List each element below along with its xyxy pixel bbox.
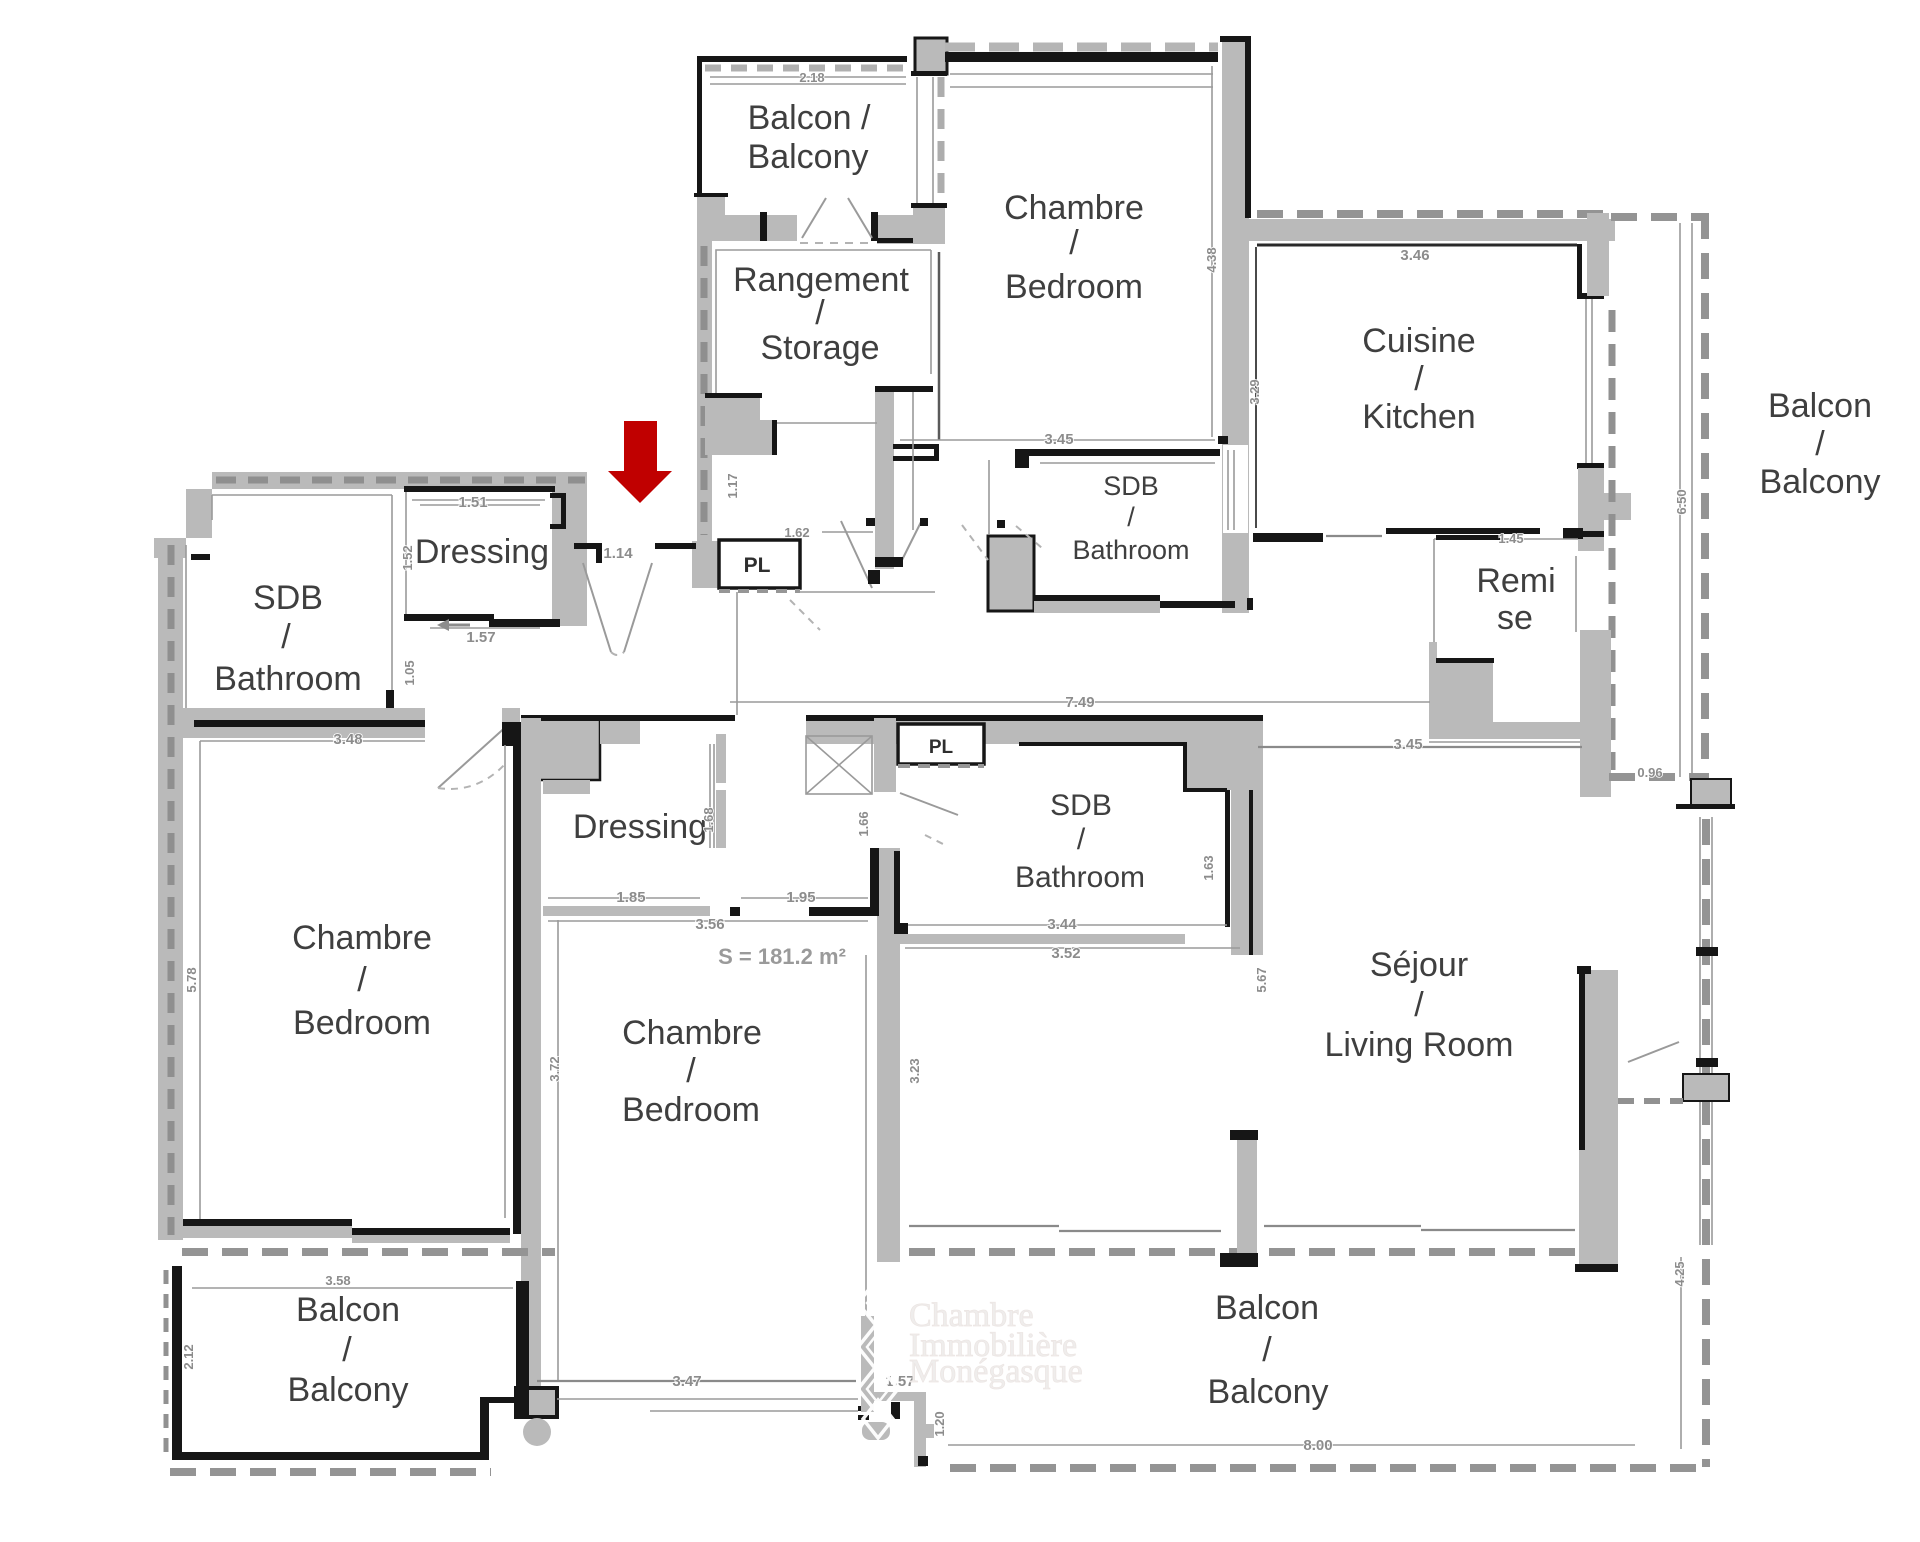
- svg-text:Balcony: Balcony: [1208, 1373, 1329, 1411]
- svg-text:/: /: [1127, 502, 1135, 532]
- svg-text:Bedroom: Bedroom: [293, 1004, 431, 1042]
- svg-text:SDB: SDB: [1050, 789, 1112, 822]
- svg-text:/: /: [357, 961, 367, 999]
- svg-text:3.45: 3.45: [1393, 736, 1422, 753]
- svg-text:Bathroom: Bathroom: [214, 660, 361, 698]
- svg-text:3.47: 3.47: [672, 1373, 701, 1390]
- svg-text:1.63: 1.63: [1201, 855, 1216, 880]
- svg-text:/: /: [1815, 425, 1825, 463]
- svg-text:SDB: SDB: [253, 579, 323, 617]
- svg-text:Dressing: Dressing: [573, 808, 707, 846]
- svg-text:3.29: 3.29: [1247, 379, 1262, 404]
- svg-text:3.45: 3.45: [1044, 431, 1073, 448]
- svg-text:Cuisine: Cuisine: [1362, 322, 1475, 360]
- svg-text:1.95: 1.95: [786, 889, 815, 906]
- svg-text:/: /: [1414, 360, 1424, 398]
- svg-text:/: /: [1069, 224, 1079, 262]
- svg-text:0.96: 0.96: [1637, 765, 1662, 780]
- svg-text:3.72: 3.72: [547, 1056, 562, 1081]
- svg-text:/: /: [686, 1052, 696, 1090]
- svg-text:S = 181.2 m²: S = 181.2 m²: [718, 944, 846, 969]
- svg-text:SDB: SDB: [1103, 471, 1159, 501]
- svg-text:/: /: [1414, 986, 1424, 1024]
- svg-text:Chambre: Chambre: [1004, 189, 1144, 227]
- svg-text:/: /: [281, 618, 291, 656]
- svg-text:Balcony: Balcony: [1760, 463, 1881, 501]
- svg-text:3.48: 3.48: [333, 731, 362, 748]
- svg-text:1.14: 1.14: [603, 545, 633, 562]
- svg-text:Chambre: Chambre: [292, 919, 432, 957]
- svg-text:3.44: 3.44: [1047, 916, 1077, 933]
- svg-text:Balcony: Balcony: [288, 1371, 409, 1409]
- svg-text:PL: PL: [744, 554, 771, 577]
- svg-text:5.67: 5.67: [1254, 967, 1269, 992]
- svg-text:1.62: 1.62: [784, 525, 809, 540]
- svg-text:Kitchen: Kitchen: [1362, 398, 1475, 436]
- svg-text:Séjour: Séjour: [1370, 946, 1468, 984]
- svg-text:se: se: [1497, 599, 1533, 637]
- svg-text:Storage: Storage: [760, 329, 879, 367]
- svg-text:3.58: 3.58: [325, 1273, 350, 1288]
- svg-text:2.12: 2.12: [181, 1344, 196, 1369]
- svg-text:3.23: 3.23: [907, 1058, 922, 1083]
- svg-text:Remi: Remi: [1476, 562, 1555, 600]
- svg-text:Balcon: Balcon: [1768, 387, 1872, 425]
- svg-text:1.20: 1.20: [932, 1411, 947, 1436]
- svg-text:1.52: 1.52: [400, 545, 415, 570]
- svg-text:Dressing: Dressing: [415, 533, 549, 571]
- svg-text:2.18: 2.18: [799, 70, 824, 85]
- svg-text:3.46: 3.46: [1400, 247, 1429, 264]
- svg-text:Balcon: Balcon: [296, 1291, 400, 1329]
- svg-text:1.85: 1.85: [616, 889, 645, 906]
- svg-text:Living Room: Living Room: [1325, 1026, 1514, 1064]
- svg-text:7.49: 7.49: [1065, 694, 1094, 711]
- svg-text:Balcon /: Balcon /: [748, 99, 871, 137]
- svg-text:1.51: 1.51: [458, 494, 487, 511]
- svg-text:PL: PL: [929, 737, 954, 758]
- svg-text:Balcony: Balcony: [748, 138, 869, 176]
- svg-text:/: /: [1262, 1331, 1272, 1369]
- svg-text:1.57: 1.57: [466, 629, 495, 646]
- svg-text:Balcon: Balcon: [1215, 1289, 1319, 1327]
- svg-text:Bedroom: Bedroom: [1005, 268, 1143, 306]
- svg-text:5.78: 5.78: [184, 967, 199, 992]
- svg-text:Bedroom: Bedroom: [622, 1091, 760, 1129]
- svg-text:Chambre: Chambre: [622, 1014, 762, 1052]
- svg-text:/: /: [342, 1331, 352, 1369]
- svg-text:6.50: 6.50: [1674, 489, 1689, 514]
- svg-text:1.66: 1.66: [856, 811, 871, 836]
- svg-text:/: /: [1077, 823, 1086, 856]
- svg-text:1.45: 1.45: [1498, 531, 1523, 546]
- svg-text:/: /: [815, 294, 825, 332]
- svg-text:4.38: 4.38: [1204, 247, 1219, 272]
- svg-text:3.56: 3.56: [695, 916, 724, 933]
- svg-text:3.52: 3.52: [1051, 945, 1080, 962]
- svg-text:Bathroom: Bathroom: [1015, 861, 1145, 894]
- svg-text:Monégasque: Monégasque: [909, 1353, 1083, 1390]
- svg-text:Bathroom: Bathroom: [1072, 535, 1189, 565]
- svg-text:8.00: 8.00: [1303, 1437, 1332, 1454]
- svg-text:1.17: 1.17: [725, 473, 740, 498]
- svg-text:1.68: 1.68: [701, 807, 716, 832]
- svg-text:1.05: 1.05: [402, 660, 417, 685]
- svg-text:4.25: 4.25: [1672, 1261, 1687, 1286]
